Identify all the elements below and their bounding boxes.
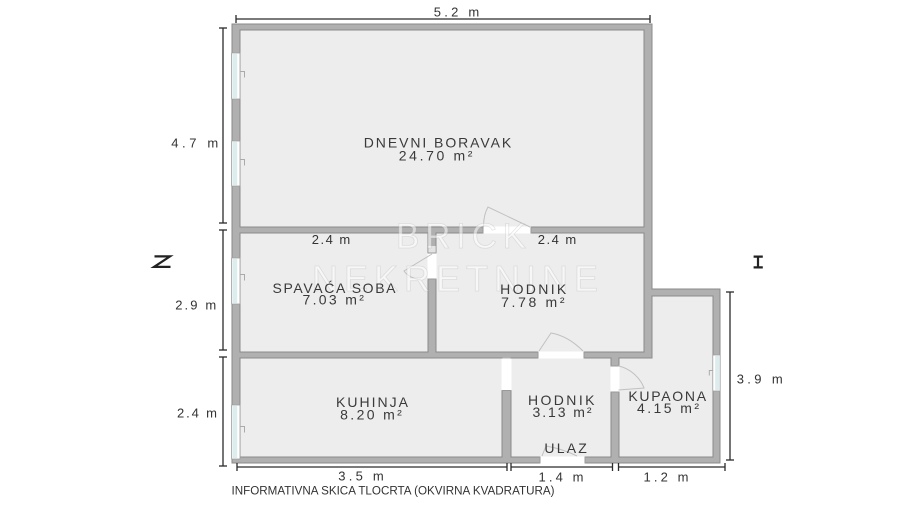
svg-text:4.15 m²: 4.15 m²	[637, 400, 699, 416]
svg-text:2.4 m: 2.4 m	[312, 232, 351, 247]
svg-text:3.5 m: 3.5 m	[338, 469, 384, 484]
svg-text:INFORMATIVNA SKICA TLOCRTA (OK: INFORMATIVNA SKICA TLOCRTA (OKVIRNA KVAD…	[232, 486, 555, 498]
svg-text:7.03 m²: 7.03 m²	[302, 292, 364, 308]
svg-text:7.78 m²: 7.78 m²	[501, 294, 565, 310]
svg-text:3.9 m: 3.9 m	[737, 372, 783, 387]
svg-text:1.2 m: 1.2 m	[644, 470, 689, 485]
svg-text:1.4 m: 1.4 m	[539, 470, 584, 485]
svg-text:3.13 m²: 3.13 m²	[533, 404, 592, 420]
svg-text:2.4 m: 2.4 m	[177, 405, 217, 420]
svg-text:5.2 m: 5.2 m	[434, 5, 480, 20]
svg-text:4.7 m: 4.7 m	[171, 136, 218, 151]
svg-text:2.9 m: 2.9 m	[175, 297, 216, 312]
svg-text:2.4 m: 2.4 m	[538, 232, 577, 247]
svg-text:8.20 m²: 8.20 m²	[340, 407, 402, 423]
svg-text:24.70 m²: 24.70 m²	[399, 148, 473, 164]
svg-text:BRICK: BRICK	[396, 217, 526, 256]
svg-text:ULAZ: ULAZ	[544, 440, 587, 456]
